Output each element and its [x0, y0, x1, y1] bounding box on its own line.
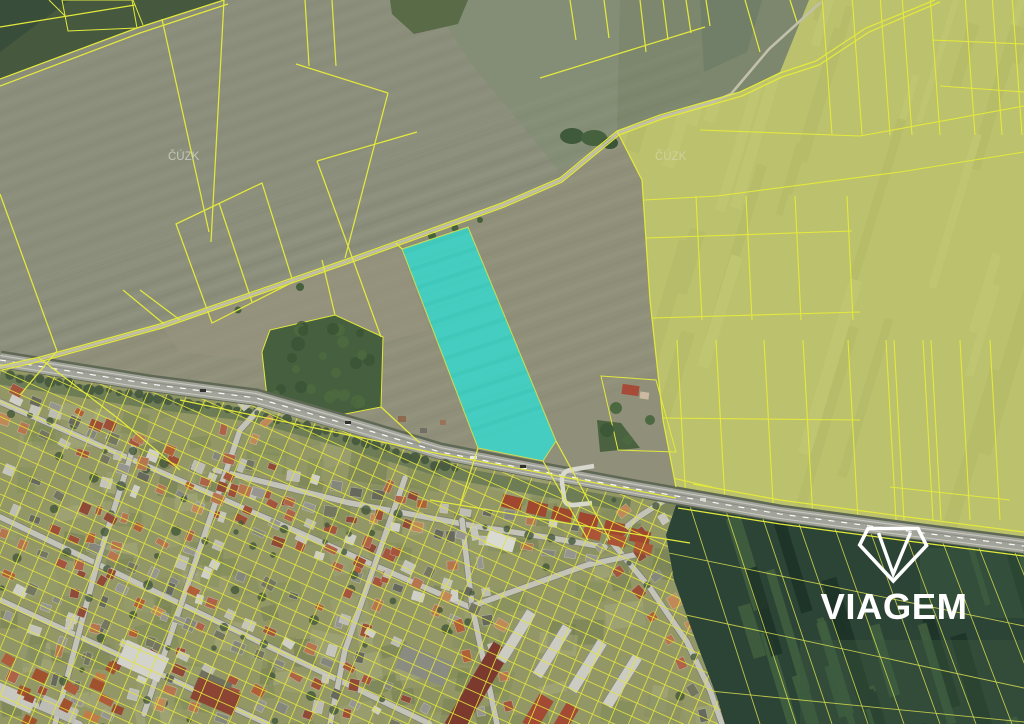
svg-text:ČÚZK: ČÚZK: [168, 150, 200, 163]
svg-text:VIAGEM: VIAGEM: [821, 586, 968, 627]
svg-text:ČÚZK: ČÚZK: [655, 150, 687, 163]
